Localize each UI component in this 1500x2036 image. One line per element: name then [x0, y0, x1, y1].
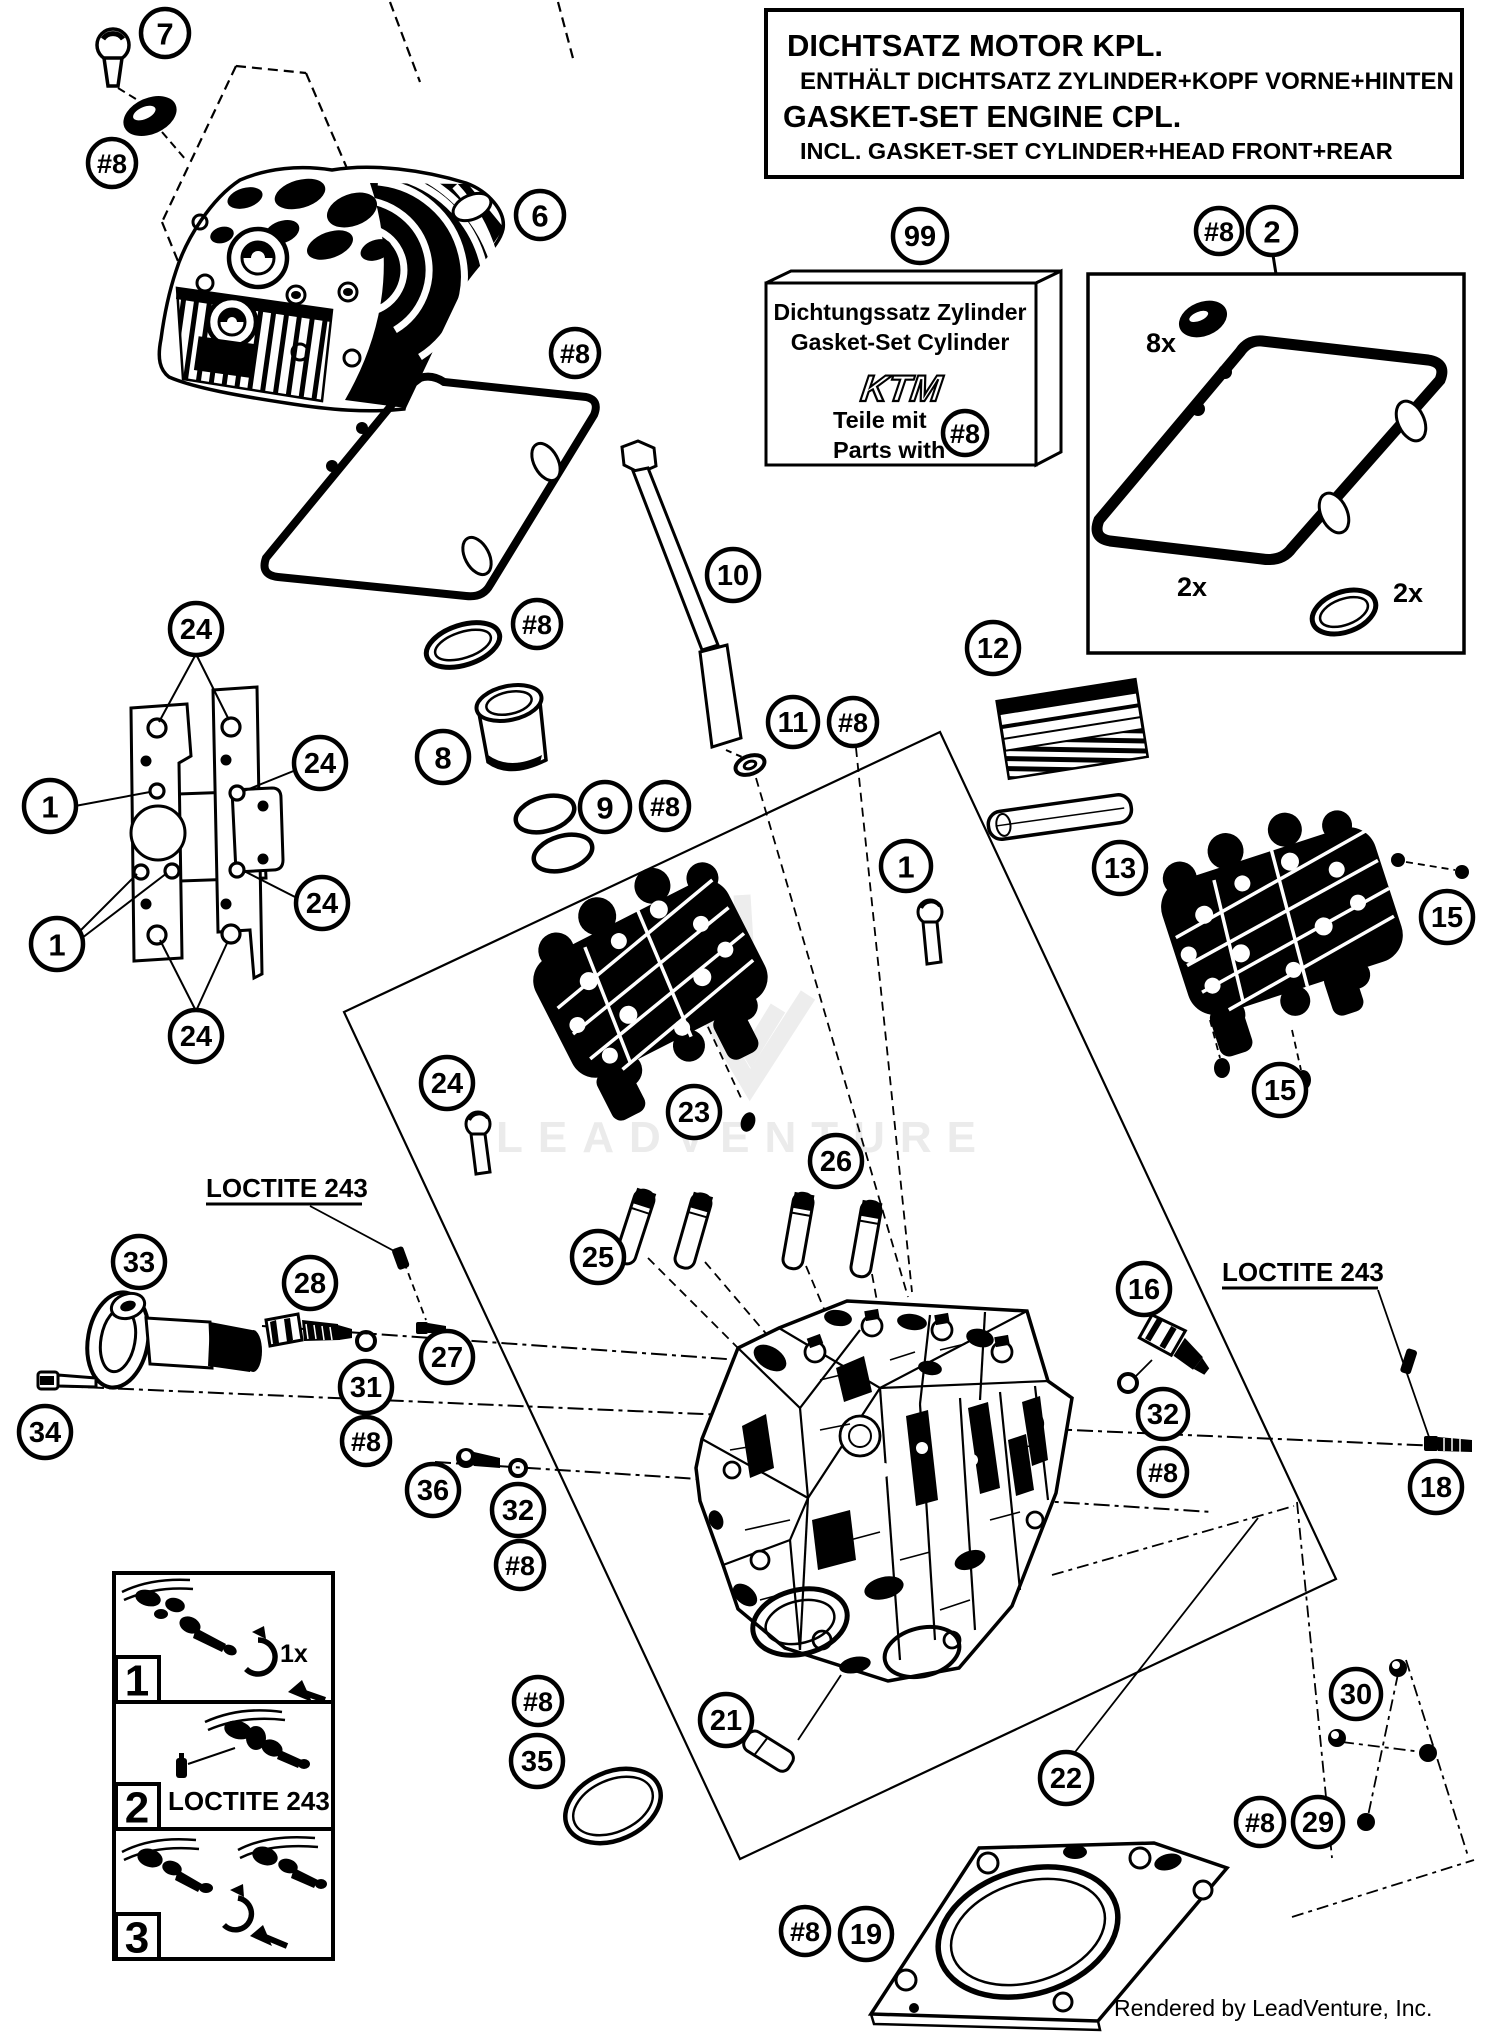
svg-text:18: 18 [1420, 1472, 1452, 1504]
svg-text:24: 24 [306, 888, 338, 920]
svg-text:Dichtungssatz Zylinder: Dichtungssatz Zylinder [773, 299, 1026, 325]
svg-text:15: 15 [1431, 902, 1463, 934]
svg-text:#8: #8 [1245, 1808, 1275, 1838]
svg-text:#8: #8 [560, 339, 590, 369]
svg-text:Gasket-Set Cylinder: Gasket-Set Cylinder [791, 329, 1010, 355]
svg-text:30: 30 [1340, 1679, 1372, 1711]
svg-text:8: 8 [434, 741, 451, 776]
svg-text:1: 1 [897, 850, 914, 885]
svg-text:24: 24 [180, 614, 212, 646]
svg-text:LOCTITE 243: LOCTITE 243 [168, 1786, 330, 1816]
svg-text:#8: #8 [505, 1551, 535, 1581]
svg-text:#8: #8 [1148, 1458, 1178, 1488]
svg-text:24: 24 [431, 1068, 463, 1100]
svg-text:#8: #8 [523, 1687, 553, 1717]
svg-text:ENTHÄLT DICHTSATZ ZYLINDER+KOP: ENTHÄLT DICHTSATZ ZYLINDER+KOPF VORNE+HI… [800, 68, 1454, 95]
svg-text:29: 29 [1302, 1807, 1334, 1839]
svg-text:24: 24 [180, 1021, 212, 1053]
svg-text:Rendered by LeadVenture, Inc.: Rendered by LeadVenture, Inc. [1114, 1995, 1432, 2021]
svg-text:#8: #8 [790, 1917, 820, 1947]
svg-text:25: 25 [582, 1242, 614, 1274]
svg-text:19: 19 [850, 1919, 882, 1951]
svg-text:#8: #8 [97, 149, 127, 179]
svg-text:#8: #8 [351, 1427, 381, 1457]
svg-text:#8: #8 [950, 419, 980, 449]
svg-text:13: 13 [1104, 853, 1136, 885]
svg-text:LOCTITE 243: LOCTITE 243 [1222, 1257, 1384, 1287]
svg-text:28: 28 [294, 1268, 326, 1300]
svg-text:15: 15 [1264, 1075, 1296, 1107]
svg-text:16: 16 [1128, 1274, 1160, 1306]
svg-text:2: 2 [125, 1784, 149, 1833]
svg-text:3: 3 [125, 1914, 149, 1963]
svg-text:22: 22 [1050, 1763, 1082, 1795]
svg-text:36: 36 [417, 1475, 449, 1507]
svg-text:32: 32 [502, 1495, 534, 1527]
svg-text:8x: 8x [1146, 328, 1176, 358]
svg-text:33: 33 [123, 1247, 155, 1279]
svg-text:12: 12 [977, 633, 1009, 665]
svg-text:2: 2 [1263, 215, 1280, 250]
svg-text:1: 1 [41, 790, 58, 825]
svg-text:#8: #8 [650, 792, 680, 822]
svg-text:35: 35 [521, 1746, 553, 1778]
svg-text:31: 31 [350, 1372, 382, 1404]
svg-text:2x: 2x [1393, 578, 1423, 608]
svg-text:21: 21 [710, 1705, 742, 1737]
svg-text:1x: 1x [280, 1640, 308, 1668]
svg-text:Teile mit: Teile mit [833, 407, 927, 433]
svg-text:#8: #8 [522, 610, 552, 640]
svg-text:6: 6 [531, 199, 548, 234]
svg-text:Parts with: Parts with [833, 437, 945, 463]
svg-text:GASKET-SET ENGINE CPL.: GASKET-SET ENGINE CPL. [783, 100, 1181, 134]
svg-text:1: 1 [48, 928, 65, 963]
svg-text:11: 11 [778, 707, 809, 739]
svg-text:7: 7 [156, 17, 173, 52]
svg-text:32: 32 [1147, 1399, 1179, 1431]
svg-text:DICHTSATZ MOTOR KPL.: DICHTSATZ MOTOR KPL. [787, 28, 1163, 63]
svg-text:24: 24 [304, 748, 336, 780]
svg-text:LOCTITE 243: LOCTITE 243 [206, 1173, 368, 1203]
svg-text:KTM: KTM [859, 367, 946, 409]
svg-text:1: 1 [125, 1657, 149, 1706]
svg-text:#8: #8 [838, 708, 868, 738]
svg-text:99: 99 [904, 221, 936, 253]
svg-text:27: 27 [431, 1342, 463, 1374]
svg-text:9: 9 [596, 791, 613, 826]
svg-text:10: 10 [717, 560, 749, 592]
svg-text:26: 26 [820, 1146, 852, 1178]
svg-text:34: 34 [29, 1417, 61, 1449]
svg-text:#8: #8 [1204, 217, 1234, 247]
svg-text:2x: 2x [1177, 572, 1207, 602]
svg-text:INCL. GASKET-SET CYLINDER+HEAD: INCL. GASKET-SET CYLINDER+HEAD FRONT+REA… [800, 138, 1393, 164]
svg-text:23: 23 [678, 1097, 710, 1129]
